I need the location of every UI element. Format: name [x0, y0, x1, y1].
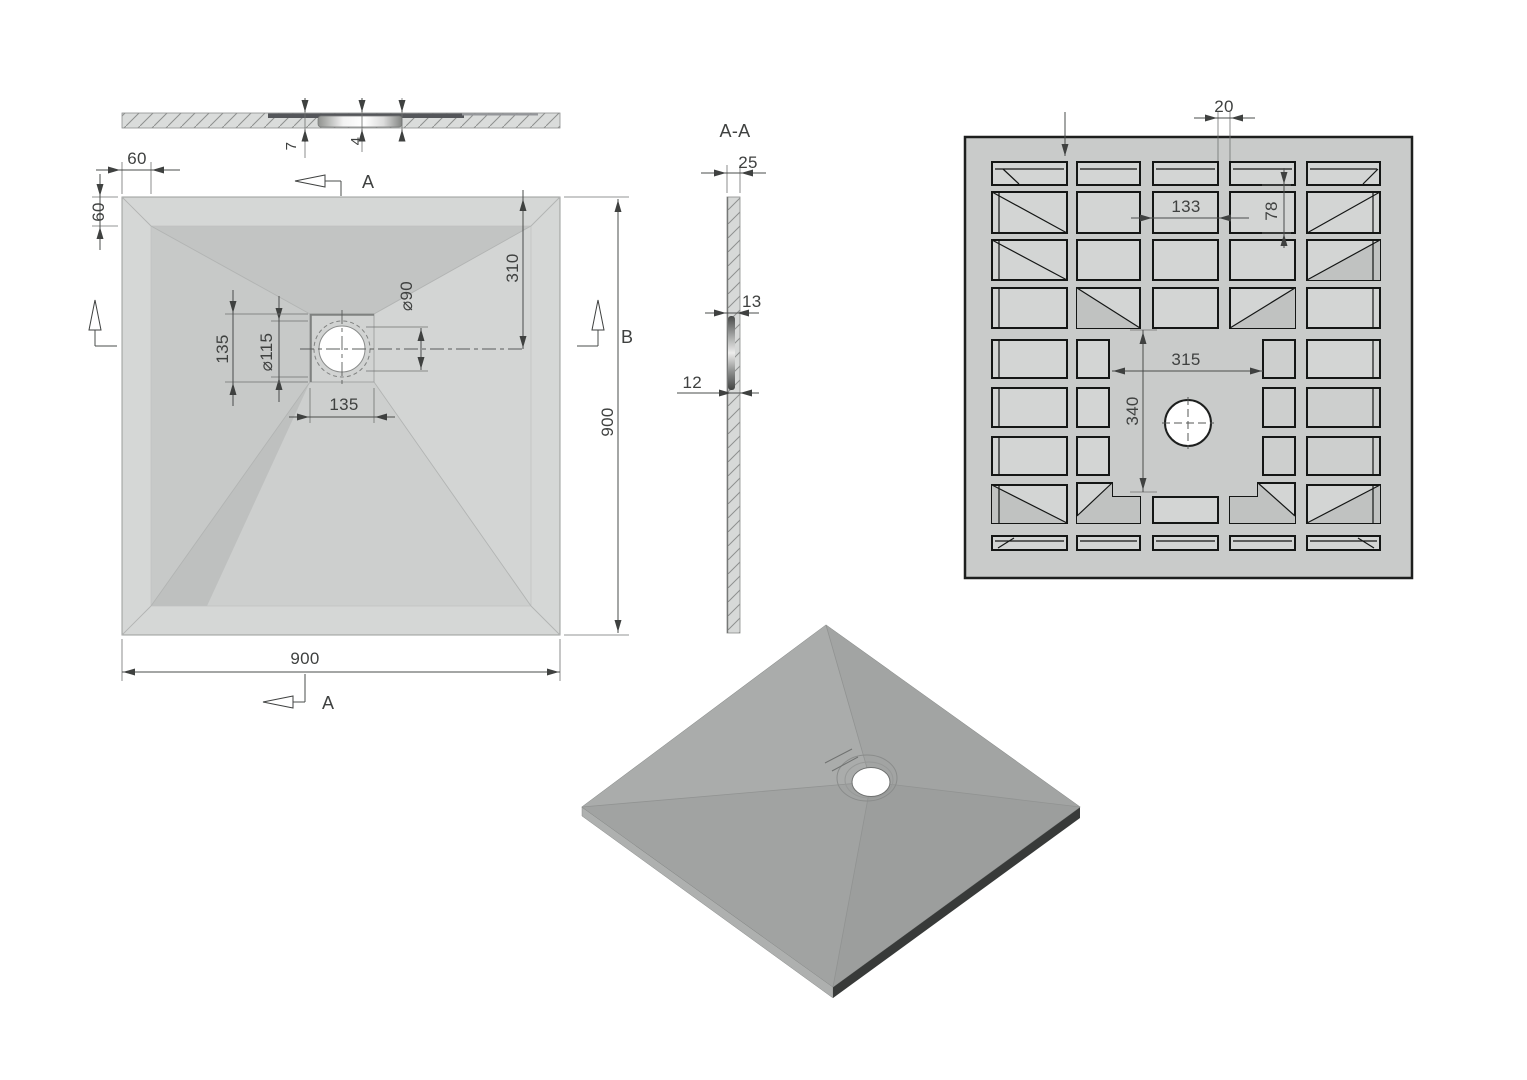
- dim-78-label: 78: [1262, 201, 1281, 221]
- section-b-label: B: [621, 327, 633, 347]
- dim-133-label: 133: [1171, 197, 1200, 216]
- section-aa-view: A-A 25 13 12: [677, 121, 766, 633]
- technical-drawing-page: 7 4: [0, 0, 1527, 1080]
- section-aa-title: A-A: [720, 121, 751, 141]
- dim-d115-label: ⌀115: [257, 333, 276, 372]
- dim-d90-label: ⌀90: [397, 281, 416, 311]
- dim-20-label: 20: [1214, 97, 1234, 116]
- shower-tray-drawing: 7 4: [0, 0, 1527, 1080]
- isometric-view: [582, 625, 1080, 998]
- drain-recess-section: [728, 316, 735, 390]
- dim-13-label: 13: [742, 292, 762, 311]
- dim-315-label: 315: [1171, 350, 1200, 369]
- drain-recess-profile: [318, 116, 402, 127]
- front-elevation-view: 7 4: [122, 98, 560, 158]
- dim-135-bottom-label: 135: [329, 395, 358, 414]
- dim-135-left-label: 135: [213, 334, 232, 363]
- dim-310-label: 310: [503, 253, 522, 282]
- section-a-bottom-label: A: [322, 693, 334, 713]
- dim-4-label: 4: [348, 137, 365, 146]
- dim-900-right-label: 900: [598, 407, 617, 436]
- dim-60-left-label: 60: [89, 202, 108, 222]
- dim-7-label: 7: [283, 142, 300, 151]
- dim-25-label: 25: [738, 153, 758, 172]
- section-a-top-label: A: [362, 172, 374, 192]
- bottom-view: 20 133 78 315 340: [965, 97, 1412, 578]
- dim-340-label: 340: [1123, 396, 1142, 425]
- dim-60-top-label: 60: [127, 149, 147, 168]
- section-dimensions: 25 13 12: [677, 153, 766, 393]
- dim-12-label: 12: [682, 373, 702, 392]
- drain-hole-iso: [852, 768, 890, 797]
- dim-900-bottom-label: 900: [290, 649, 319, 668]
- plan-view: 60 60 310 ⌀90 ⌀115: [89, 149, 633, 713]
